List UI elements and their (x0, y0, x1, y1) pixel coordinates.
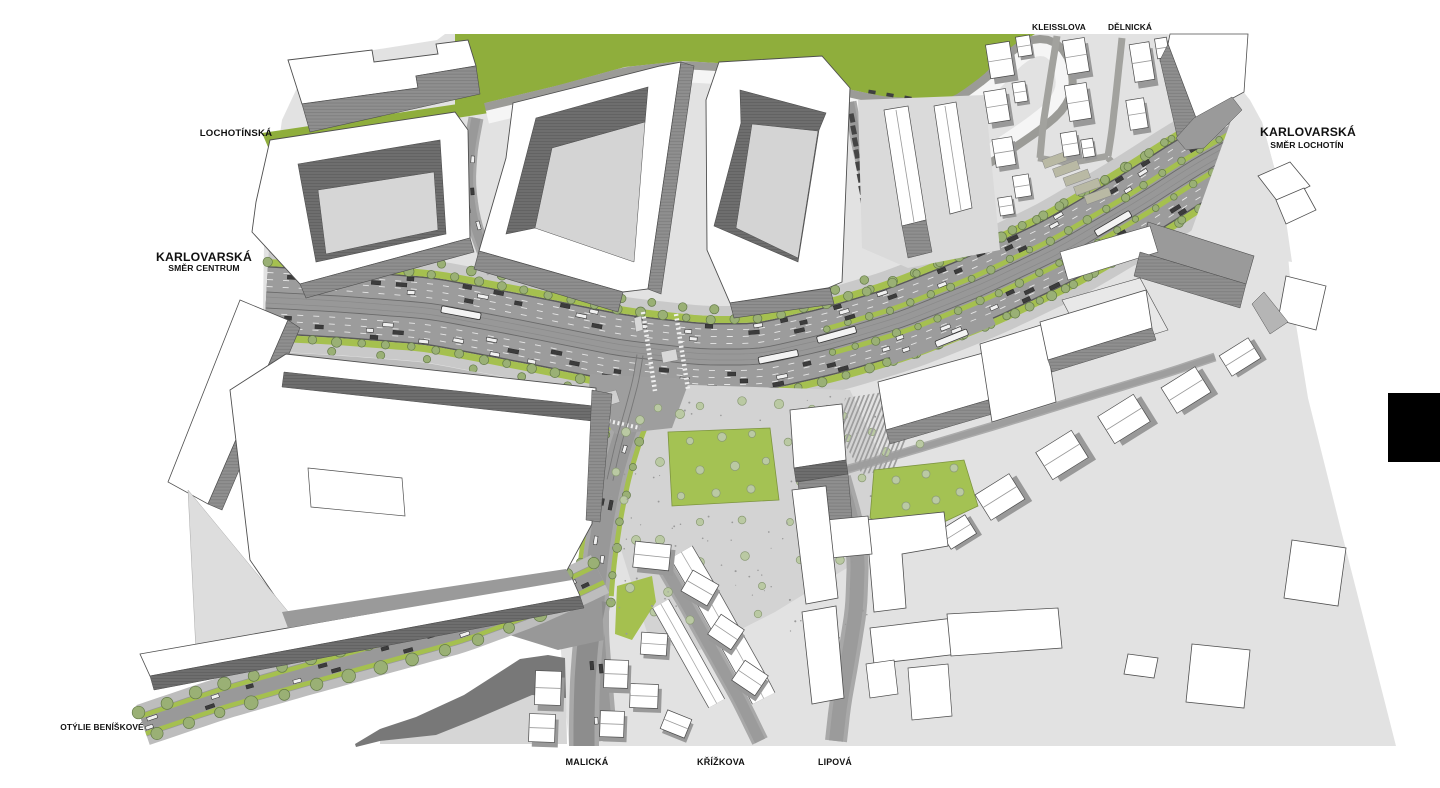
svg-text:MALICKÁ: MALICKÁ (566, 757, 609, 767)
svg-text:LIPOVÁ: LIPOVÁ (818, 757, 852, 767)
svg-text:KLEISSLOVA: KLEISSLOVA (1032, 22, 1086, 32)
svg-text:KŘÍŽKOVA: KŘÍŽKOVA (697, 756, 745, 767)
svg-text:LOCHOTÍNSKÁ: LOCHOTÍNSKÁ (200, 127, 273, 139)
svg-text:KARLOVARSKÁ: KARLOVARSKÁ (156, 249, 252, 264)
svg-text:OTÝLIE BENÍŠKOVÉ: OTÝLIE BENÍŠKOVÉ (60, 721, 144, 732)
svg-text:DĚLNICKÁ: DĚLNICKÁ (1108, 21, 1152, 32)
svg-text:SMĚR CENTRUM: SMĚR CENTRUM (168, 262, 239, 273)
svg-text:KARLOVARSKÁ: KARLOVARSKÁ (1260, 124, 1356, 139)
svg-text:SMĚR LOCHOTÍN: SMĚR LOCHOTÍN (1270, 139, 1343, 150)
